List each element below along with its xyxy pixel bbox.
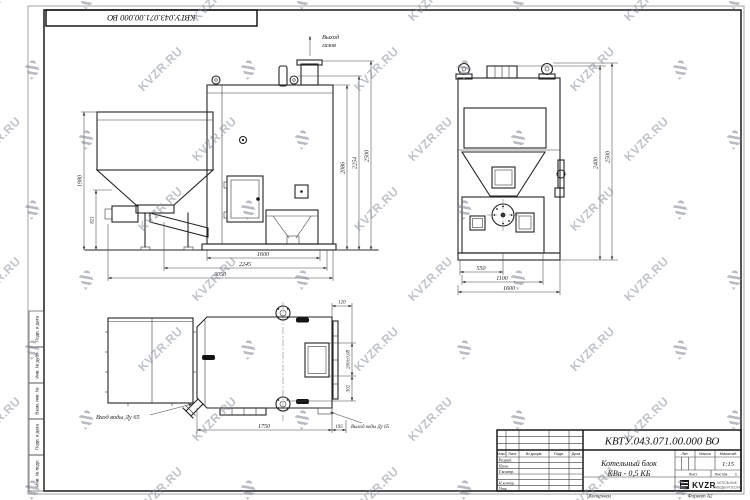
dim-1750: 1750 xyxy=(258,424,270,430)
side-dims-bottom: 550 1100 1600 xyxy=(458,253,560,295)
format-label: Формат А2 xyxy=(688,495,713,500)
margin-column: Подп. и дата Инв. № дубл. Взам. инв. № П… xyxy=(29,311,44,491)
copied-label: Копировал xyxy=(588,495,611,500)
ash-box-front xyxy=(266,210,318,244)
dim-1600-front: 1600 xyxy=(257,252,269,258)
dim-1980: 1980 xyxy=(78,175,84,187)
drawing-sheet: КВТУ.043.071.00.000 ВО Подп. и дата Инв.… xyxy=(0,0,750,500)
dim-1600-side: 1600 xyxy=(503,286,515,292)
front-dims-right: 2086 2254 2500 xyxy=(298,61,374,250)
col-list: Лист xyxy=(508,451,517,456)
front-dims-left: 1980 821 xyxy=(78,112,113,250)
plan-view: 120 200±0,08 302 1750 195 Вход воды Ду 6… xyxy=(96,301,390,434)
dim-2254: 2254 xyxy=(352,157,359,169)
boiler-body-front xyxy=(202,60,336,250)
fuel-hopper-front xyxy=(97,112,213,250)
staff-row: Н.контр. xyxy=(498,481,516,486)
corner-stamp: КВТУ.043.071.00.000 ВО xyxy=(46,10,257,26)
sheets-count: 1 xyxy=(735,472,737,477)
drawing-canvas: КВТУ.043.071.00.000 ВО Подп. и дата Инв.… xyxy=(0,0,750,500)
dim-3050: 3050 xyxy=(213,272,226,278)
brand-cell: KVZR КОТЕЛЬНЫЕ ЗАВОДЫ РОССИИ xyxy=(680,480,742,490)
corner-stamp-number: КВТУ.043.071.00.000 ВО xyxy=(107,13,197,23)
lit-label: Лит. xyxy=(681,451,688,456)
dim-120: 120 xyxy=(338,301,346,306)
dim-2400: 2400 xyxy=(593,157,600,169)
inspection-hatch xyxy=(305,343,329,377)
dim-200: 200±0,08 xyxy=(347,350,352,369)
gas-out-label-1: Выход xyxy=(322,34,339,41)
col-date: Дата xyxy=(572,451,581,456)
side-view: 2400 2500 550 1100 1600 xyxy=(456,63,618,295)
dim-821: 821 xyxy=(91,216,96,224)
dim-550: 550 xyxy=(477,266,486,272)
staff-row: Утв. xyxy=(499,486,508,491)
staff-row: Т.контр. xyxy=(499,469,515,474)
front-view: Выход газов 1980 821 2086 2254 2500 xyxy=(78,34,379,281)
front-dims-bottom: 1600 2245 3050 xyxy=(108,222,333,281)
dim-2245: 2245 xyxy=(239,261,251,268)
dim-2500: 2500 xyxy=(365,150,371,162)
col-podp: Подп. xyxy=(554,451,564,456)
product-name-1: Котельный блок xyxy=(600,459,657,468)
handle xyxy=(296,318,309,323)
dim-2500-side: 2500 xyxy=(606,151,612,163)
handle xyxy=(296,399,309,404)
dim-195: 195 xyxy=(335,425,343,430)
sheet-label: Лист xyxy=(689,472,698,477)
boiler-body-plan xyxy=(183,302,338,421)
gas-out-label-2: газов xyxy=(322,42,336,49)
margin-label: Взам. инв. № xyxy=(35,387,40,414)
title-block: Изм. Лист № докум. Подп. Дата Разраб. Пр… xyxy=(497,430,742,500)
chimney xyxy=(301,64,318,85)
col-izm: Изм. xyxy=(497,451,505,456)
dim-1100: 1100 xyxy=(496,276,508,282)
margin-label: Подп. и дата xyxy=(35,316,40,342)
water-out-label: Выход воды Ду 65 xyxy=(351,425,390,430)
scale-label: Масштаб xyxy=(720,451,737,456)
mass-label: Масса xyxy=(699,451,711,456)
side-dims-right: 2400 2500 xyxy=(517,63,618,260)
staff-row: Разраб. xyxy=(498,458,513,463)
sheets-label: Листов xyxy=(715,472,728,477)
thermometer-well xyxy=(279,66,287,86)
margin-label: Инв. № подл. xyxy=(35,459,40,486)
kvzr-logo-icon xyxy=(680,480,689,489)
brand-line-1: КОТЕЛЬНЫЕ xyxy=(717,481,737,485)
scale-value: 1:15 xyxy=(722,461,735,468)
margin-label: Подп. и дата xyxy=(35,424,40,450)
fan xyxy=(487,199,519,231)
dim-302: 302 xyxy=(347,384,352,392)
handle xyxy=(202,355,215,360)
col-docum: № докум. xyxy=(525,451,542,456)
doc-number: КВТУ.043.071.00.000 ВО xyxy=(604,436,720,448)
water-in-label: Вход воды Ду 65 xyxy=(96,414,140,421)
fuel-hopper-plan xyxy=(105,318,196,406)
margin-label: Инв. № дубл. xyxy=(35,351,40,378)
gas-out-annotation: Выход газов xyxy=(310,34,339,56)
staff-row: Пров. xyxy=(498,463,509,468)
dim-2086: 2086 xyxy=(341,162,347,174)
brand-line-2: ЗАВОДЫ РОССИИ xyxy=(713,486,742,490)
product-name-2: КВа - 0,5 КБ xyxy=(607,469,651,478)
